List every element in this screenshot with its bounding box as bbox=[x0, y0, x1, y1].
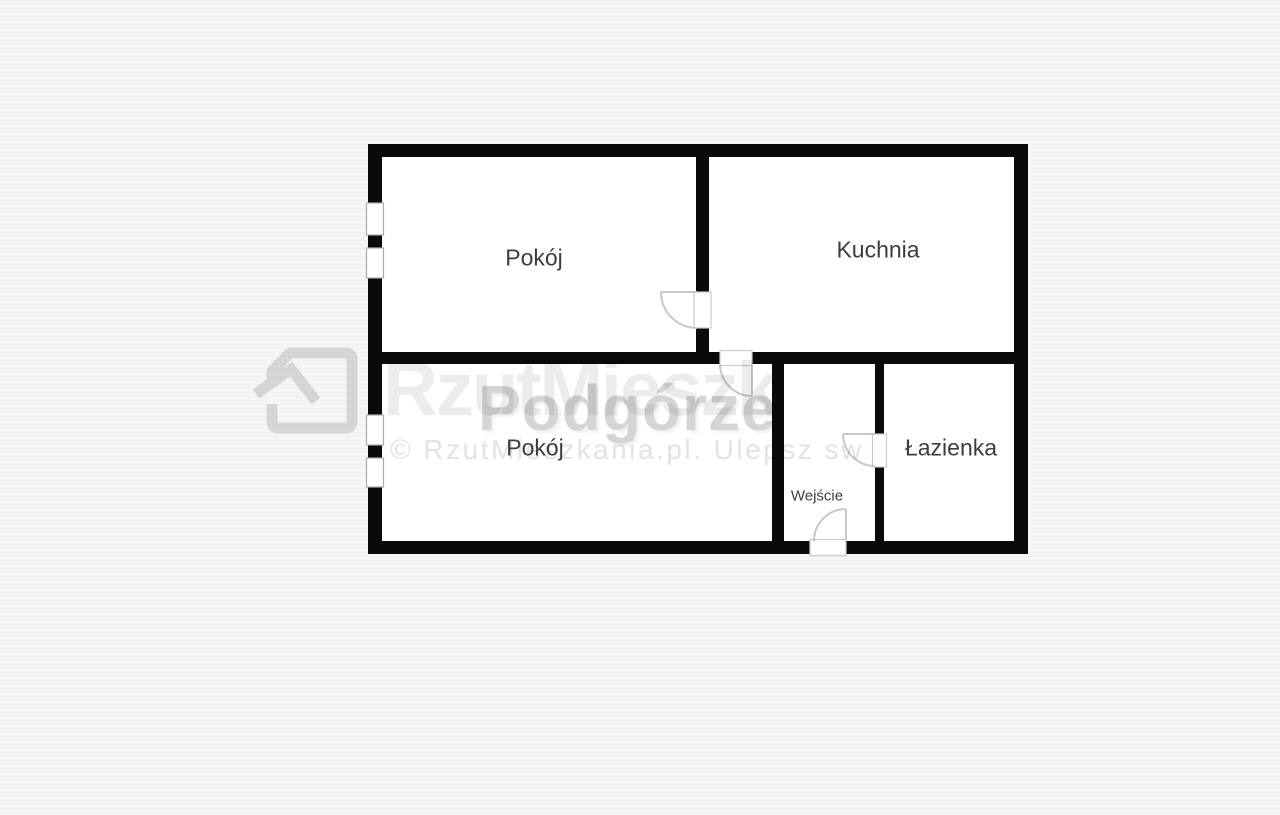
window-top-room-a bbox=[367, 203, 384, 235]
wall-hall-left bbox=[772, 352, 784, 554]
room-label-pokoj-top: Pokój bbox=[505, 247, 563, 270]
door-frame-bathroom bbox=[873, 434, 887, 467]
wall-room-kitchen-divider bbox=[696, 144, 709, 364]
window-bottom-room-b bbox=[367, 458, 384, 487]
window-bottom-room-a bbox=[367, 415, 384, 445]
room-label-pokoj-bottom: Pokój bbox=[506, 437, 564, 460]
wall-bottom bbox=[368, 541, 1028, 554]
door-frame-entrance bbox=[810, 540, 846, 556]
wall-right bbox=[1014, 144, 1028, 554]
room-label-kuchnia: Kuchnia bbox=[836, 239, 919, 262]
room-label-lazienka: Łazienka bbox=[905, 437, 997, 460]
door-frame-room-kitchen bbox=[694, 292, 711, 328]
window-top-room-b bbox=[367, 248, 384, 278]
door-frame-kitchen-hall bbox=[720, 351, 752, 366]
floorplan-drawing bbox=[0, 0, 1280, 815]
room-label-wejscie: Wejście bbox=[791, 489, 843, 504]
floorplan-page: RzutMieszk Podgórze © RzutMieszkania.pl.… bbox=[0, 0, 1280, 815]
